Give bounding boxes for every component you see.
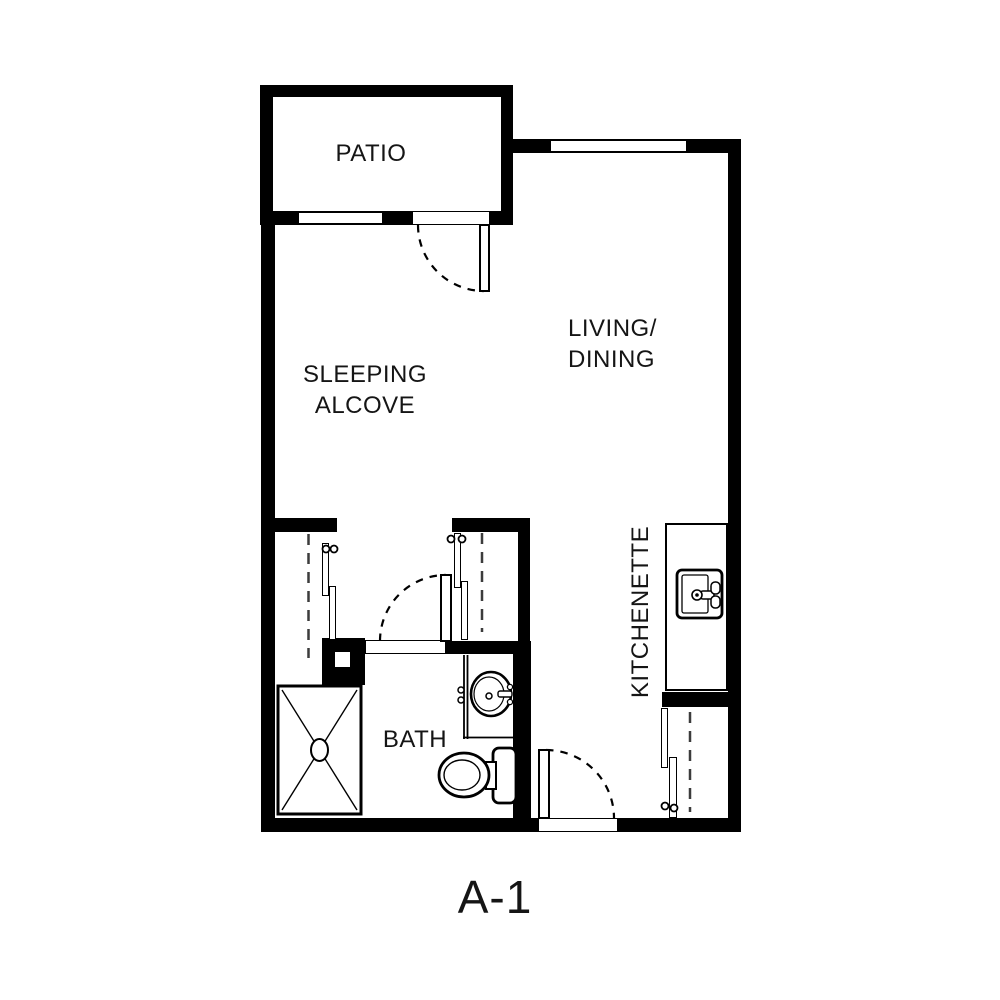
sleeping-alcove-line2: ALCOVE (265, 390, 465, 421)
living-dining-line2: DINING (568, 344, 728, 375)
patio-label-text: PATIO (336, 140, 407, 167)
bath-label-text: BATH (383, 726, 447, 753)
floor-plan: PATIO SLEEPING ALCOVE LIVING/ DINING KIT… (0, 0, 1000, 1000)
shower-icon (278, 686, 361, 814)
bath-label: BATH (355, 724, 475, 755)
kitchen-sink-icon (677, 570, 722, 618)
fixtures-layer (0, 0, 1000, 1000)
sleeping-alcove-label: SLEEPING ALCOVE (265, 359, 465, 421)
bath-door-arc (380, 575, 446, 641)
plan-title-text: A-1 (458, 871, 533, 923)
sleeping-alcove-line1: SLEEPING (265, 359, 465, 390)
bath-door-leaf (441, 575, 451, 641)
entry-door-arc (546, 750, 614, 818)
patio-door-leaf (480, 225, 489, 291)
toilet-icon (439, 748, 516, 803)
closet-right-handles (662, 803, 678, 812)
living-dining-line1: LIVING/ (568, 313, 728, 344)
closet-left-handles (323, 546, 338, 553)
kitchenette-label: KITCHENETTE (628, 512, 654, 712)
patio-label: PATIO (301, 138, 441, 169)
entry-door-leaf (539, 750, 549, 818)
patio-door-arc (418, 225, 484, 291)
plan-title: A-1 (375, 872, 615, 922)
closet-mid-handles (448, 536, 466, 543)
kitchenette-label-text: KITCHENETTE (627, 526, 654, 698)
living-dining-label: LIVING/ DINING (568, 313, 728, 375)
